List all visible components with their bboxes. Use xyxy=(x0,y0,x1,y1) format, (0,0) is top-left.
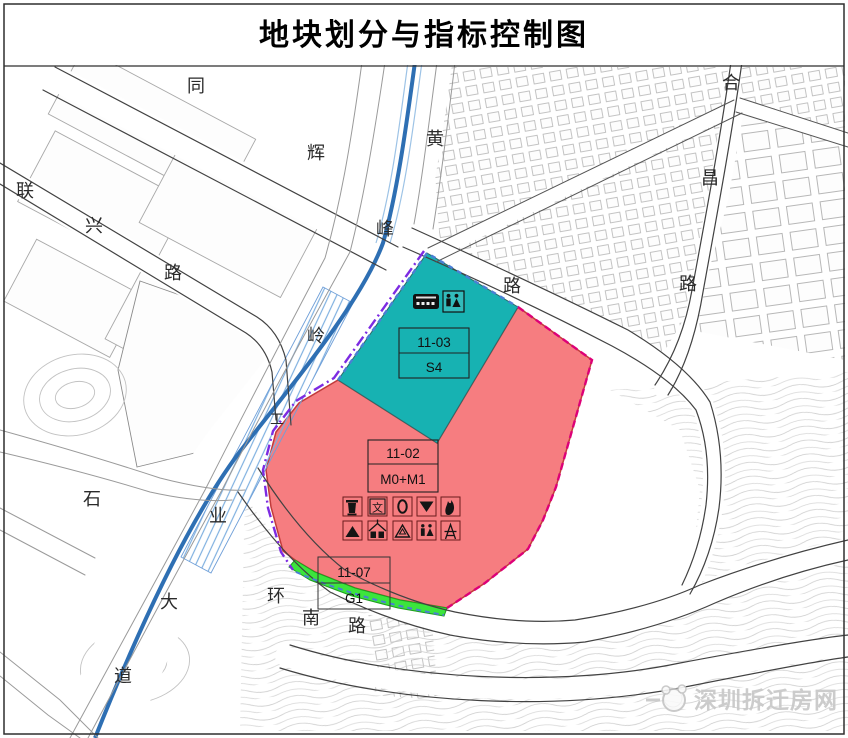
planning-map-page: 文 xyxy=(0,0,848,738)
bus-station-icon xyxy=(413,294,439,309)
road-label: 道 xyxy=(114,666,132,686)
road-label: 石 xyxy=(83,489,101,509)
culture-icon-char: 文 xyxy=(372,501,383,515)
road-label: 路 xyxy=(164,263,182,283)
road-label: 联 xyxy=(16,181,34,201)
road-label: 岭 xyxy=(307,326,325,346)
road-label: 合 xyxy=(722,73,740,93)
road-label: 峰 xyxy=(376,219,394,239)
parcel-11-07-id: 11-07 xyxy=(337,565,371,580)
watermark: 深圳拆迁房网 xyxy=(646,685,838,713)
road-label: 辉 xyxy=(307,143,325,163)
road-label: 昌 xyxy=(701,168,719,188)
road-label: 工 xyxy=(270,413,284,428)
parcel-11-07-use: G1 xyxy=(345,591,363,606)
road-label: 同 xyxy=(187,76,205,96)
road-label: 路 xyxy=(348,616,366,636)
watermark-text: 深圳拆迁房网 xyxy=(694,687,838,713)
road-label: 大 xyxy=(160,592,178,612)
public-toilet-icon xyxy=(443,291,464,312)
road-label: 兴 xyxy=(85,216,103,236)
road-label: 环 xyxy=(267,586,285,606)
road-label: 路 xyxy=(679,274,697,294)
parcel-11-03-id: 11-03 xyxy=(417,335,451,350)
road-label: 路 xyxy=(503,276,521,296)
road-label: 南 xyxy=(302,608,320,628)
road-label: 黄 xyxy=(426,129,444,149)
page-title: 地块划分与指标控制图 xyxy=(259,19,589,52)
road-label: 业 xyxy=(209,506,227,526)
parcel-11-03-use: S4 xyxy=(426,360,443,375)
planning-map: 文 xyxy=(0,0,848,738)
parcel-11-02-use: M0+M1 xyxy=(380,472,425,487)
parcel-11-02-id: 11-02 xyxy=(386,446,420,461)
